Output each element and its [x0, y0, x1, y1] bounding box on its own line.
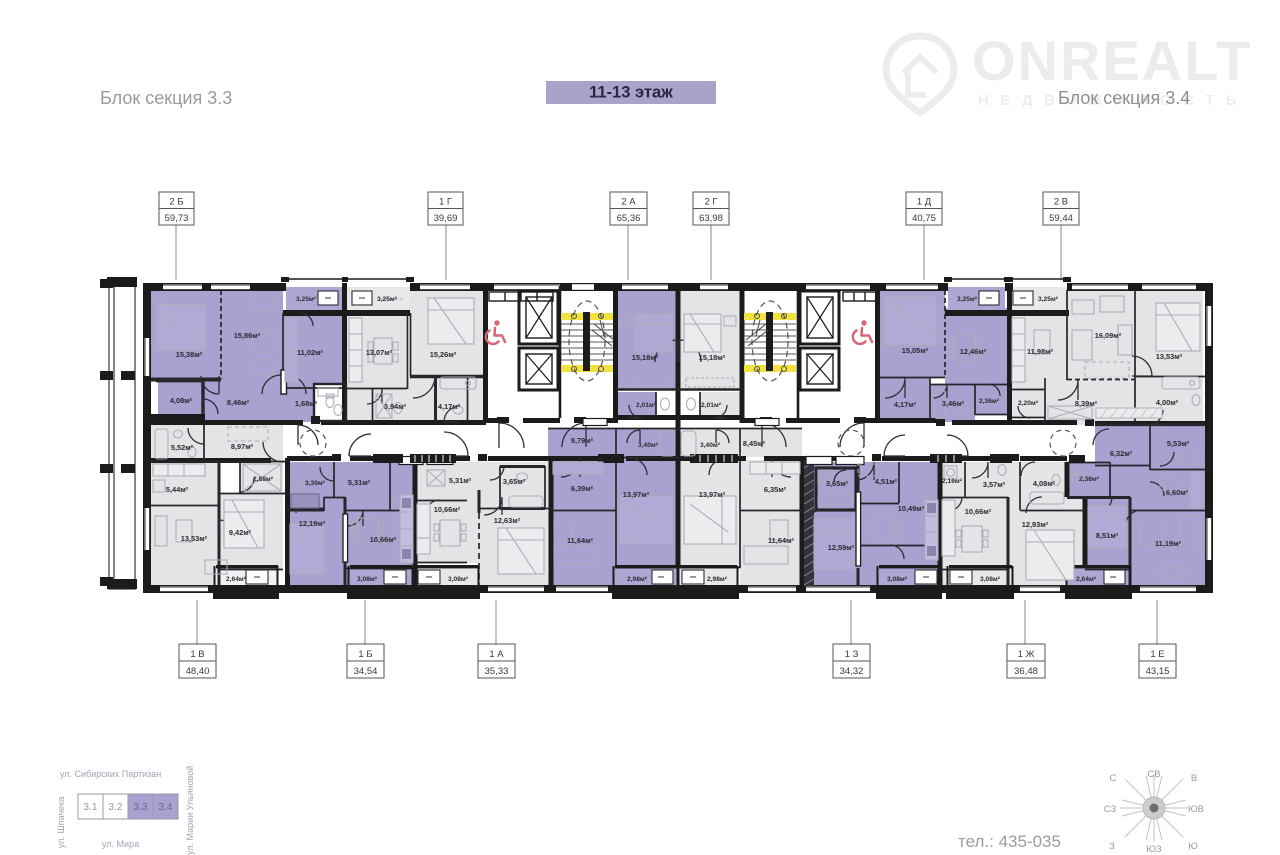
svg-text:11-13 этаж: 11-13 этаж: [589, 84, 673, 102]
svg-text:2 В: 2 В: [1054, 197, 1068, 208]
svg-text:4,17м²: 4,17м²: [438, 402, 461, 411]
svg-text:СЗ: СЗ: [1104, 804, 1117, 815]
svg-text:3,25м²: 3,25м²: [377, 296, 398, 303]
svg-text:59,44: 59,44: [1049, 213, 1073, 224]
svg-text:6,32м²: 6,32м²: [1110, 449, 1133, 458]
svg-text:4,51м²: 4,51м²: [875, 477, 898, 486]
svg-text:43,15: 43,15: [1146, 666, 1170, 677]
svg-text:12,63м²: 12,63м²: [494, 516, 521, 525]
svg-text:65,36: 65,36: [617, 213, 641, 224]
svg-text:5,31м²: 5,31м²: [348, 478, 371, 487]
svg-text:ЮЗ: ЮЗ: [1146, 844, 1162, 855]
svg-text:5,52м²: 5,52м²: [171, 443, 194, 452]
svg-text:8,97м²: 8,97м²: [231, 442, 254, 451]
svg-text:13,07м²: 13,07м²: [366, 348, 393, 357]
svg-text:12,93м²: 12,93м²: [1022, 520, 1049, 529]
svg-text:ул. Марии Ульяновой: ул. Марии Ульяновой: [185, 766, 195, 855]
svg-text:ЮВ: ЮВ: [1188, 804, 1204, 815]
svg-text:З: З: [1109, 841, 1115, 852]
svg-text:3,25м²: 3,25м²: [296, 296, 317, 303]
svg-text:5,44м²: 5,44м²: [166, 485, 189, 494]
svg-text:3,65м²: 3,65м²: [503, 477, 526, 486]
svg-text:15,38м²: 15,38м²: [176, 350, 203, 359]
svg-text:3,57м²: 3,57м²: [983, 480, 1006, 489]
svg-text:3,40м²: 3,40м²: [638, 442, 659, 449]
svg-text:1 Е: 1 Е: [1150, 649, 1164, 660]
svg-text:6,39м²: 6,39м²: [571, 484, 594, 493]
svg-text:В: В: [1191, 773, 1197, 784]
svg-text:СВ: СВ: [1147, 769, 1160, 780]
svg-text:2,01м²: 2,01м²: [636, 402, 657, 409]
svg-text:Ю: Ю: [1188, 841, 1198, 852]
svg-text:10,66м²: 10,66м²: [370, 535, 397, 544]
svg-text:9,42м²: 9,42м²: [229, 528, 252, 537]
svg-text:8,51м²: 8,51м²: [1096, 531, 1119, 540]
svg-text:2,64м²: 2,64м²: [1076, 576, 1097, 583]
svg-text:13,97м²: 13,97м²: [623, 490, 650, 499]
svg-text:3,08м²: 3,08м²: [887, 576, 908, 583]
svg-text:8,45м²: 8,45м²: [743, 439, 766, 448]
svg-text:13,53м²: 13,53м²: [181, 534, 208, 543]
svg-text:2,36м²: 2,36м²: [1079, 476, 1100, 483]
svg-text:ул. Шпачека: ул. Шпачека: [56, 797, 66, 848]
svg-text:6,35м²: 6,35м²: [764, 485, 787, 494]
svg-text:2,98м²: 2,98м²: [707, 576, 728, 583]
svg-text:2,20м²: 2,20м²: [1018, 400, 1039, 407]
svg-text:10,66м²: 10,66м²: [434, 505, 461, 514]
svg-text:4,08м²: 4,08м²: [170, 396, 193, 405]
svg-text:4,17м²: 4,17м²: [894, 400, 917, 409]
svg-text:39,69: 39,69: [434, 213, 458, 224]
svg-text:12,59м²: 12,59м²: [828, 543, 855, 552]
svg-text:2 Г: 2 Г: [704, 197, 717, 208]
svg-text:3.4: 3.4: [159, 802, 173, 813]
svg-text:2 Б: 2 Б: [169, 197, 183, 208]
svg-text:ONREALT: ONREALT: [972, 29, 1253, 92]
svg-text:15,26м²: 15,26м²: [430, 350, 457, 359]
svg-text:3,94м²: 3,94м²: [384, 402, 407, 411]
svg-text:Блок секция 3.4: Блок секция 3.4: [1058, 88, 1190, 108]
svg-text:1 Д: 1 Д: [917, 197, 932, 208]
svg-text:15,18м²: 15,18м²: [632, 353, 659, 362]
svg-text:11,64м²: 11,64м²: [567, 536, 594, 545]
svg-text:12,19м²: 12,19м²: [299, 519, 326, 528]
svg-text:1,68м²: 1,68м²: [295, 399, 318, 408]
svg-text:11,64м²: 11,64м²: [768, 536, 795, 545]
svg-text:15,18м²: 15,18м²: [699, 353, 726, 362]
svg-text:9,79м²: 9,79м²: [571, 436, 594, 445]
svg-text:5,53м²: 5,53м²: [1167, 439, 1190, 448]
svg-text:Блок секция 3.3: Блок секция 3.3: [100, 88, 232, 108]
svg-text:16,09м²: 16,09м²: [1095, 331, 1122, 340]
svg-text:3,25м²: 3,25м²: [1038, 296, 1059, 303]
svg-text:1 Б: 1 Б: [358, 649, 372, 660]
svg-text:15,86м²: 15,86м²: [234, 331, 261, 340]
svg-text:1 Г: 1 Г: [439, 197, 452, 208]
svg-text:3,46м²: 3,46м²: [942, 399, 965, 408]
svg-text:3,30м²: 3,30м²: [305, 480, 326, 487]
svg-text:59,73: 59,73: [165, 213, 189, 224]
svg-text:3,65м²: 3,65м²: [826, 479, 849, 488]
svg-text:2,64м²: 2,64м²: [226, 576, 247, 583]
svg-text:11,19м²: 11,19м²: [1155, 539, 1182, 548]
svg-text:1 А: 1 А: [489, 649, 504, 660]
svg-text:2,98м²: 2,98м²: [627, 576, 648, 583]
svg-text:10,66м²: 10,66м²: [965, 507, 992, 516]
svg-text:10,49м²: 10,49м²: [898, 504, 925, 513]
svg-text:1 З: 1 З: [845, 649, 859, 660]
svg-text:3,08м²: 3,08м²: [448, 576, 469, 583]
svg-text:40,75: 40,75: [912, 213, 936, 224]
svg-text:15,05м²: 15,05м²: [902, 346, 929, 355]
svg-text:3.2: 3.2: [109, 802, 123, 813]
svg-text:8,46м²: 8,46м²: [227, 398, 250, 407]
svg-text:35,33: 35,33: [485, 666, 509, 677]
svg-text:2,16м²: 2,16м²: [942, 478, 963, 485]
svg-text:1 В: 1 В: [190, 649, 204, 660]
svg-text:3,08м²: 3,08м²: [357, 576, 378, 583]
svg-text:34,32: 34,32: [840, 666, 864, 677]
svg-text:8,39м²: 8,39м²: [1075, 399, 1098, 408]
svg-text:6,60м²: 6,60м²: [1166, 488, 1189, 497]
svg-text:2 А: 2 А: [621, 197, 636, 208]
svg-text:3,08м²: 3,08м²: [980, 576, 1001, 583]
svg-text:13,53м²: 13,53м²: [1156, 352, 1183, 361]
svg-text:1 Ж: 1 Ж: [1018, 649, 1035, 660]
svg-text:36,48: 36,48: [1014, 666, 1038, 677]
svg-text:тел.: 435-035: тел.: 435-035: [958, 832, 1061, 851]
svg-text:3,40м²: 3,40м²: [700, 442, 721, 449]
svg-text:2,01м²: 2,01м²: [701, 402, 722, 409]
svg-text:3,25м²: 3,25м²: [957, 296, 978, 303]
svg-text:34,54: 34,54: [354, 666, 378, 677]
svg-text:С: С: [1110, 773, 1117, 784]
svg-text:63,98: 63,98: [699, 213, 723, 224]
svg-text:2,36м²: 2,36м²: [979, 398, 1000, 405]
svg-text:3.3: 3.3: [134, 802, 148, 813]
svg-text:4,08м²: 4,08м²: [1033, 479, 1056, 488]
svg-text:3.1: 3.1: [84, 802, 98, 813]
svg-text:12,46м²: 12,46м²: [960, 347, 987, 356]
svg-text:48,40: 48,40: [186, 666, 210, 677]
svg-text:ул. Сибирских Партизан: ул. Сибирских Партизан: [60, 769, 161, 779]
svg-text:4,00м²: 4,00м²: [1156, 398, 1179, 407]
svg-text:5,31м²: 5,31м²: [449, 476, 472, 485]
svg-text:11,98м²: 11,98м²: [1027, 347, 1054, 356]
svg-text:11,02м²: 11,02м²: [297, 348, 324, 357]
svg-text:2,88м²: 2,88м²: [253, 476, 274, 483]
svg-text:ул. Мира: ул. Мира: [102, 839, 139, 849]
svg-text:13,97м²: 13,97м²: [699, 490, 726, 499]
